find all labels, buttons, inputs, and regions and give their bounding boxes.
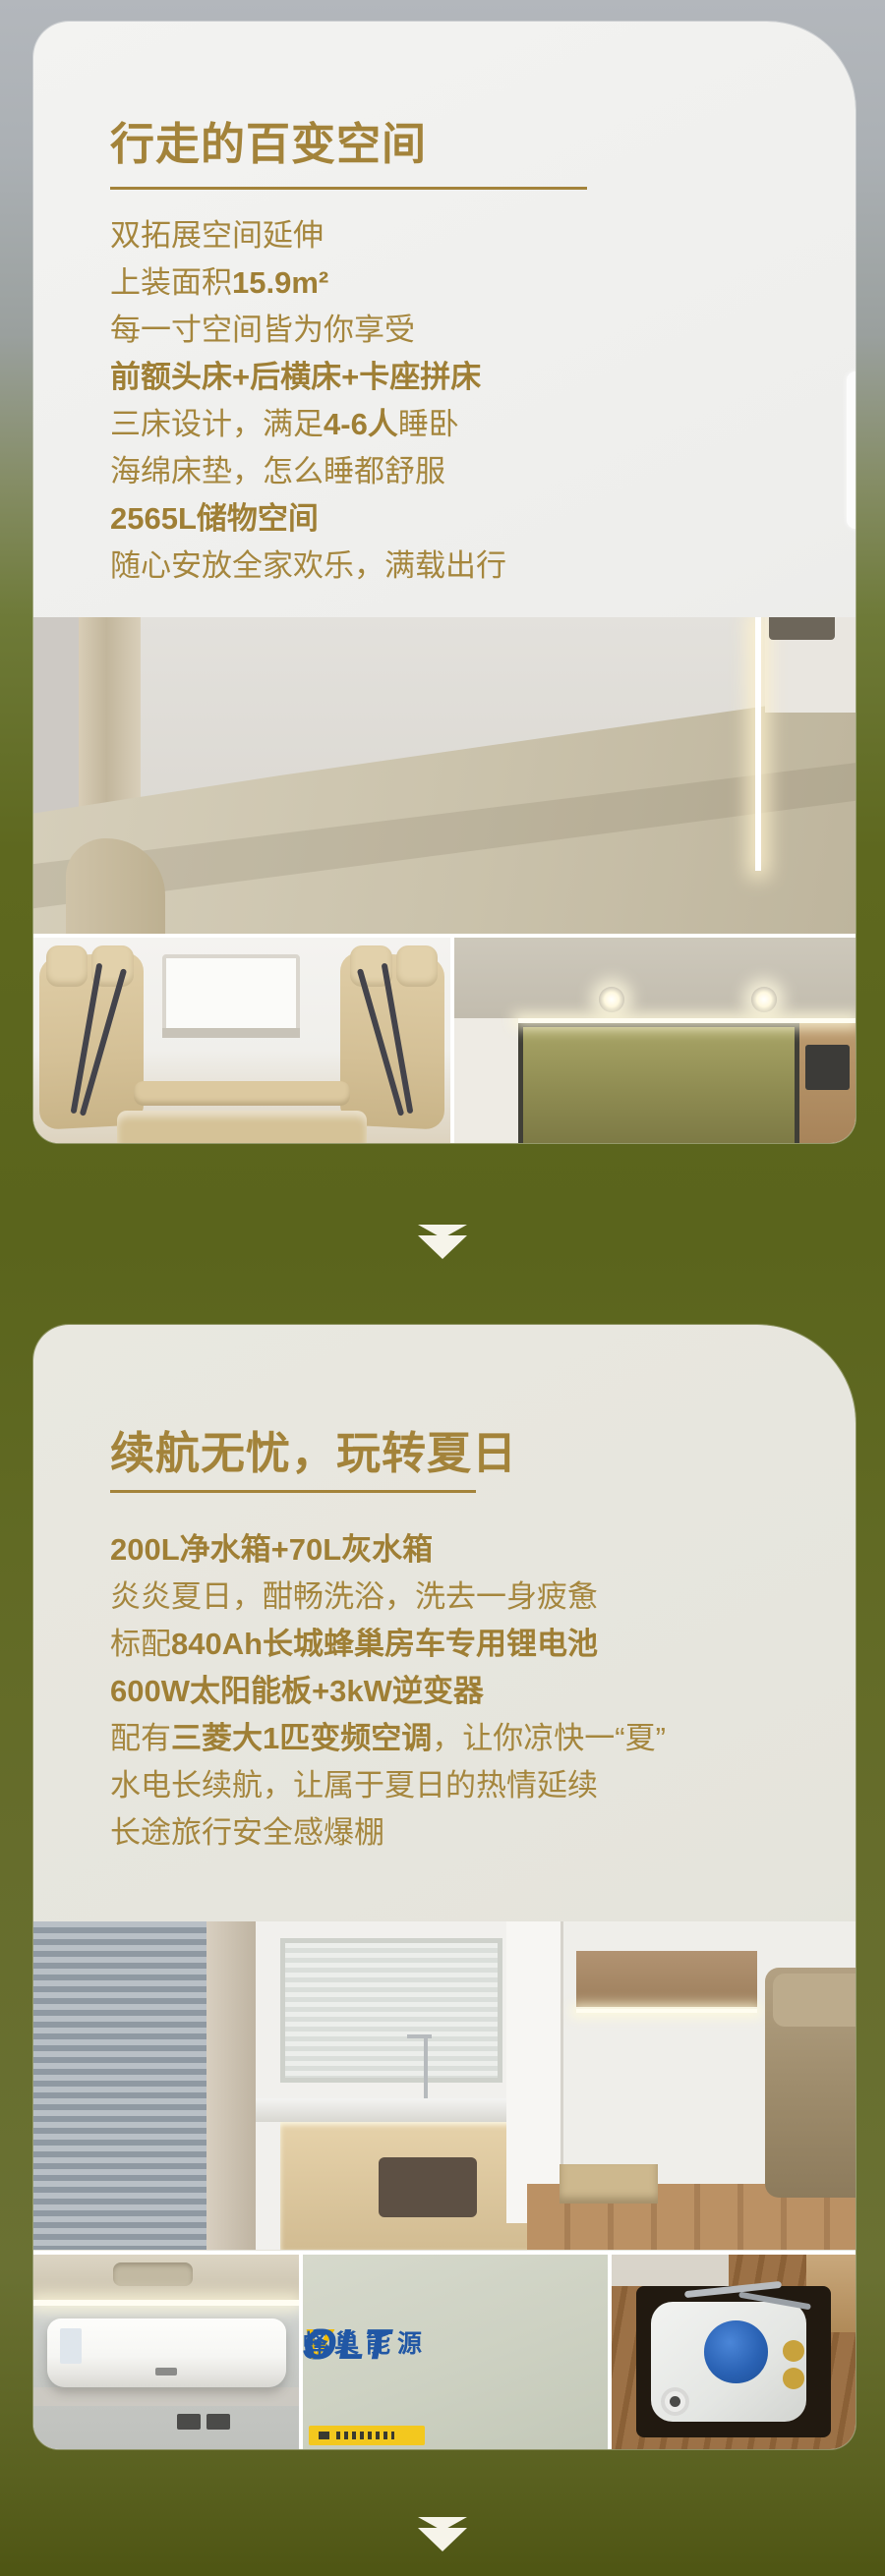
cabinet-hatch-shape	[379, 2157, 477, 2216]
scroll-down-arrow	[418, 2517, 467, 2551]
text-segment: 每一寸空间皆为你享受	[110, 313, 415, 347]
text-segment: 三菱大1匹变频空调	[171, 1721, 432, 1755]
overhead-cabinet-shape	[576, 1951, 757, 2007]
text-segment: 三床设计，满足	[110, 407, 324, 441]
headrest-shape	[396, 945, 438, 987]
section1-feature-list: 双拓展空间延伸上装面积15.9m²每一寸空间皆为你享受前额头床+后横床+卡座拼床…	[110, 212, 506, 590]
text-segment: 15.9m²	[232, 265, 328, 300]
text-segment: 海绵床垫，怎么睡都舒服	[110, 454, 445, 488]
feature-line: 炎炎夏日，酣畅洗浴，洗去一身疲惫	[110, 1574, 666, 1621]
feature-line: 标配840Ah长城蜂巢房车专用锂电池	[110, 1621, 666, 1668]
chevron-down-icon	[418, 2528, 467, 2551]
led-strip-shape	[518, 1018, 855, 1023]
vent-shape	[113, 2262, 193, 2286]
faucet-shape	[424, 2036, 428, 2102]
feature-line: 上装面积15.9m²	[110, 259, 506, 307]
ac-logo-shape	[155, 2368, 177, 2376]
feature-line: 配有三菱大1匹变频空调，让你凉快一“夏”	[110, 1715, 666, 1762]
wall-shape	[454, 1018, 518, 1143]
section2-photo-row: SVOLT 蜂巢能源	[33, 2251, 855, 2449]
rear-cushion-shape	[773, 1974, 855, 2026]
rv-interior-kitchen-photo	[33, 1921, 855, 2250]
energy-label-shape	[60, 2328, 82, 2364]
section-summer-endurance: 续航无忧，玩转夏日 200L净水箱+70L灰水箱炎炎夏日，酣畅洗浴，洗去一身疲惫…	[33, 1325, 855, 2449]
shelf-shape	[33, 2387, 299, 2407]
svolt-battery-photo: SVOLT 蜂巢能源	[303, 2255, 608, 2449]
feature-line: 600W太阳能板+3kW逆变器	[110, 1668, 666, 1715]
feature-line: 每一寸空间皆为你享受	[110, 307, 506, 354]
feature-line: 长途旅行安全感爆棚	[110, 1809, 666, 1857]
text-segment: 2565L储物空间	[110, 501, 319, 536]
feature-line: 2565L储物空间	[110, 495, 506, 543]
text-segment: ，让你凉快一“夏”	[432, 1721, 666, 1755]
overhead-bunk-photo	[454, 938, 855, 1143]
section2-title: 续航无忧，玩转夏日	[110, 1430, 517, 1477]
feature-line: 前额头床+后横床+卡座拼床	[110, 354, 506, 401]
feature-line: 随心安放全家欢乐，满载出行	[110, 543, 506, 590]
right-edge-tab	[847, 372, 855, 529]
bed-interior-photo	[33, 617, 855, 934]
cushion-shape	[134, 1081, 350, 1106]
spotlight-shape	[751, 987, 777, 1012]
text-segment: 双拓展空间延伸	[110, 218, 324, 253]
svolt-chinese-name: 蜂巢能源	[303, 2324, 429, 2360]
led-strip-shape	[576, 2009, 757, 2013]
text-segment: 前额头床+后横床+卡座拼床	[110, 360, 481, 394]
text-segment: 上装面积	[110, 265, 232, 300]
text-segment: 840Ah长城蜂巢房车专用锂电池	[171, 1627, 598, 1661]
fitting-shape	[783, 2340, 804, 2362]
warning-sticker-shape	[309, 2426, 425, 2445]
faucet-shape	[407, 2034, 432, 2038]
feature-line: 水电长续航，让属于夏日的热情延续	[110, 1762, 666, 1809]
feature-line: 双拓展空间延伸	[110, 212, 506, 259]
text-segment: 600W太阳能板+3kW逆变器	[110, 1674, 484, 1708]
bunk-bed-shape	[518, 1022, 799, 1143]
step-box-shape	[560, 2164, 658, 2204]
light-strip-shape	[33, 2300, 299, 2306]
promo-page: 行走的百变空间 双拓展空间延伸上装面积15.9m²每一寸空间皆为你享受前额头床+…	[0, 0, 885, 2576]
feature-line: 三床设计，满足4-6人睡卧	[110, 401, 506, 448]
cushion-shape	[117, 1111, 367, 1143]
blue-cap-shape	[704, 2320, 767, 2382]
section1-photo-row	[33, 934, 855, 1143]
panel-shape	[612, 2255, 729, 2286]
switch-shape	[206, 2414, 230, 2430]
text-segment: 随心安放全家欢乐，满载出行	[110, 548, 506, 583]
light-strip-shape	[755, 617, 761, 871]
air-conditioner-photo	[33, 2255, 299, 2449]
text-segment: 水电长续航，让属于夏日的热情延续	[110, 1768, 598, 1803]
water-tank-photo	[612, 2255, 855, 2449]
text-segment: 4-6人	[324, 407, 398, 441]
feature-line: 海绵床垫，怎么睡都舒服	[110, 448, 506, 495]
section1-title: 行走的百变空间	[110, 121, 427, 168]
ceiling-fixture-shape	[769, 617, 835, 640]
text-segment: 配有	[110, 1721, 171, 1755]
door-frame-shape	[206, 1921, 256, 2250]
window-sill-shape	[162, 1028, 300, 1038]
text-segment: 炎炎夏日，酣畅洗浴，洗去一身疲惫	[110, 1579, 598, 1614]
ceiling-shape	[454, 938, 855, 1018]
switch-shape	[177, 2414, 201, 2430]
door-blinds-shape	[33, 1921, 206, 2250]
section2-feature-list: 200L净水箱+70L灰水箱炎炎夏日，酣畅洗浴，洗去一身疲惫标配840Ah长城蜂…	[110, 1526, 666, 1857]
spotlight-shape	[599, 987, 624, 1012]
dinette-seats-photo	[33, 938, 450, 1143]
text-segment: 长途旅行安全感爆棚	[110, 1815, 384, 1850]
microwave-shape	[805, 1045, 850, 1090]
fitting-shape	[783, 2368, 804, 2389]
open-door-shape	[506, 1921, 564, 2223]
ac-unit-shape	[47, 2318, 286, 2386]
text-segment: 睡卧	[398, 407, 459, 441]
window-shape	[162, 954, 300, 1037]
headrest-shape	[46, 945, 88, 987]
section1-title-underline	[110, 187, 587, 190]
section-flexible-space: 行走的百变空间 双拓展空间延伸上装面积15.9m²每一寸空间皆为你享受前额头床+…	[33, 22, 855, 1143]
text-segment: 标配	[110, 1627, 171, 1661]
text-segment: 200L净水箱+70L灰水箱	[110, 1532, 433, 1567]
section2-title-underline	[110, 1490, 476, 1493]
scroll-down-arrow	[418, 1225, 467, 1259]
chevron-down-icon	[418, 1235, 467, 1259]
window-blind-shape	[280, 1938, 502, 2083]
feature-line: 200L净水箱+70L灰水箱	[110, 1526, 666, 1574]
